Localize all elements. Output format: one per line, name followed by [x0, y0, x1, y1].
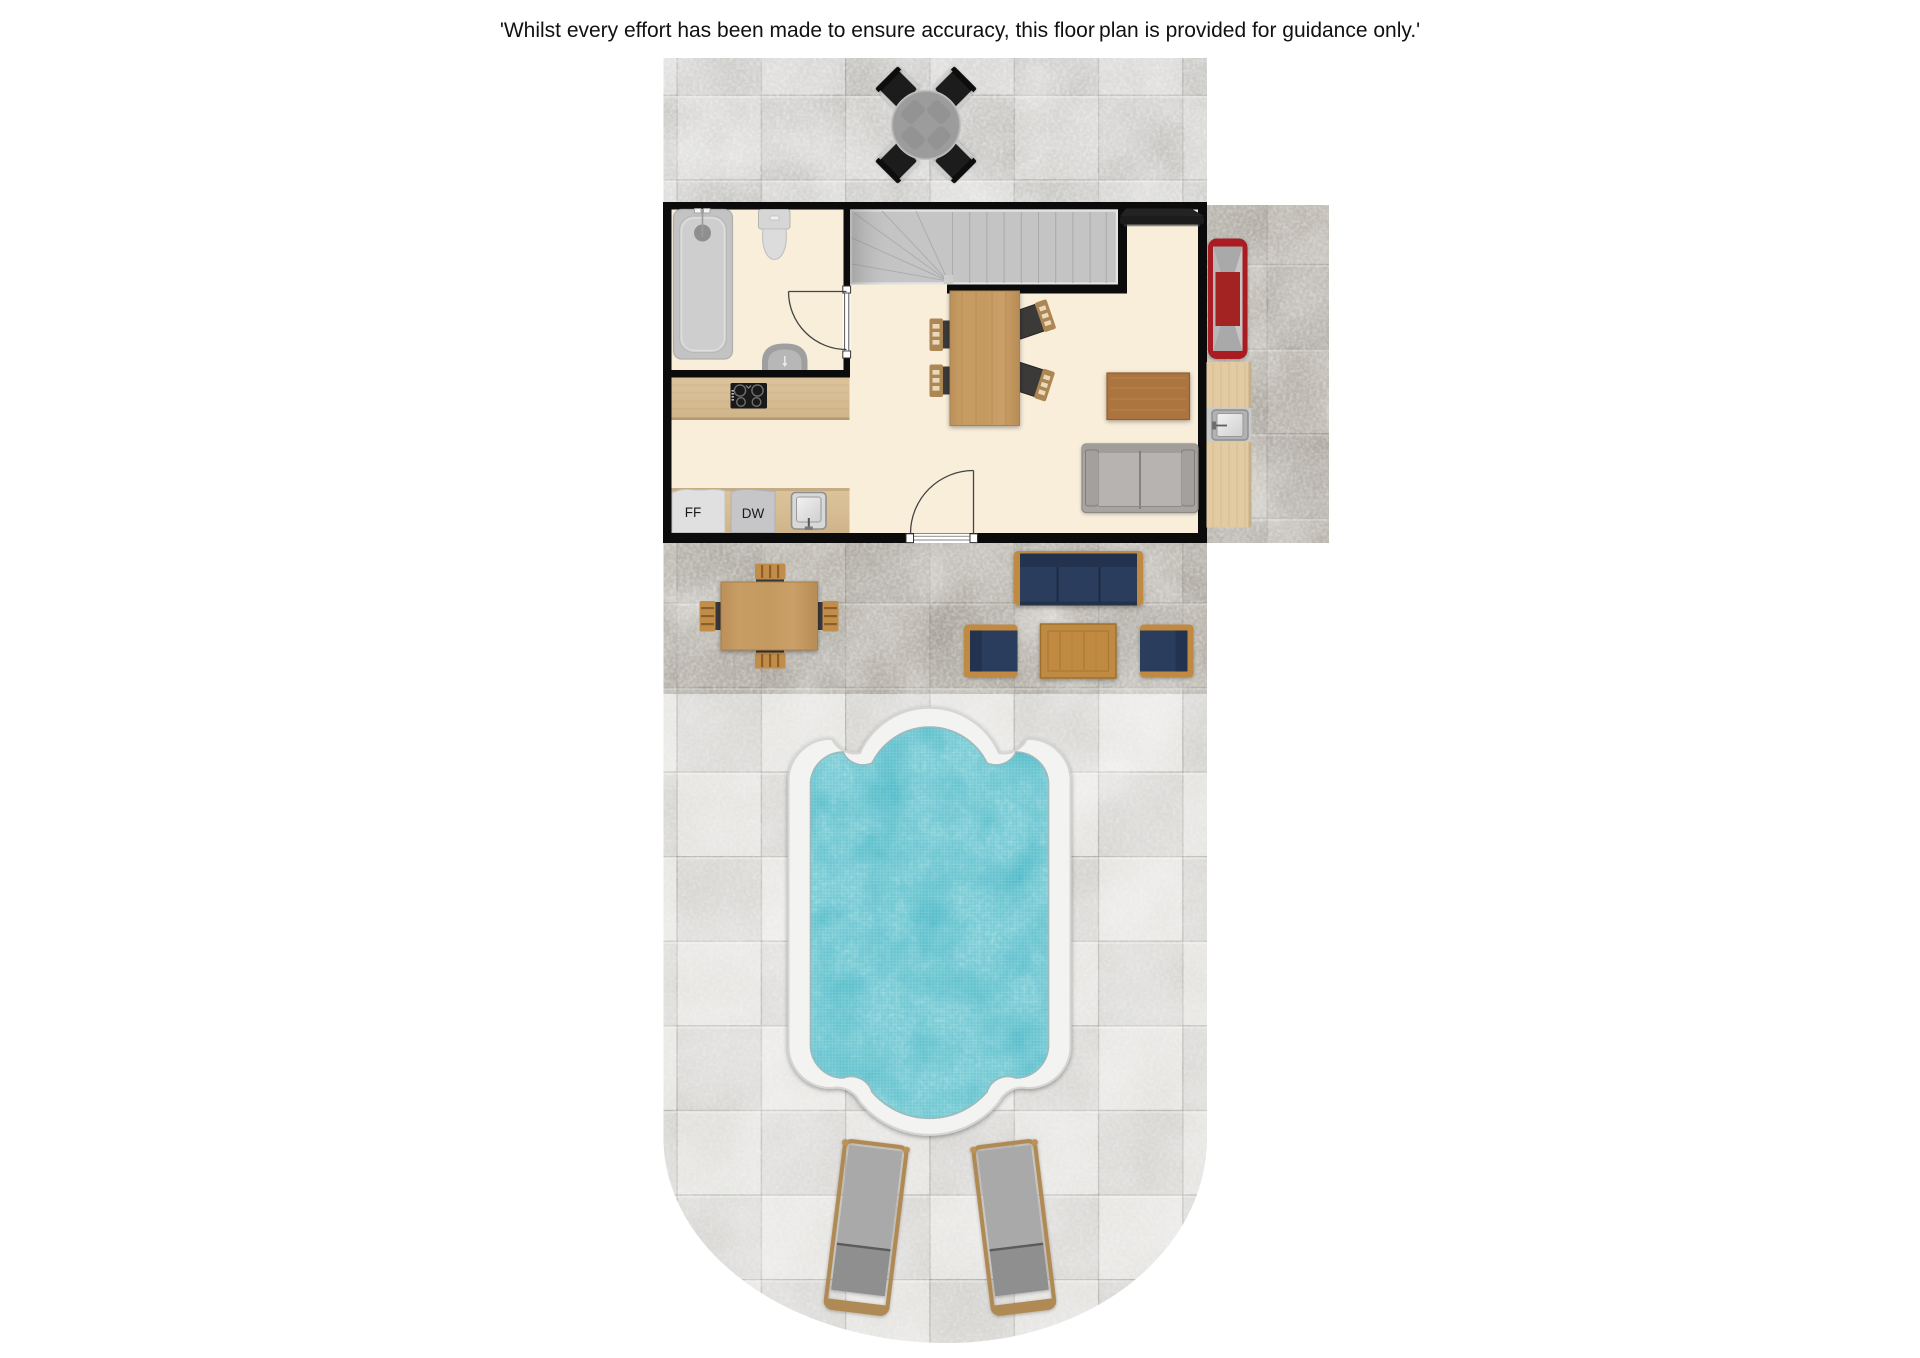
svg-text:FF: FF — [685, 505, 702, 520]
svg-text:DW: DW — [742, 506, 765, 521]
